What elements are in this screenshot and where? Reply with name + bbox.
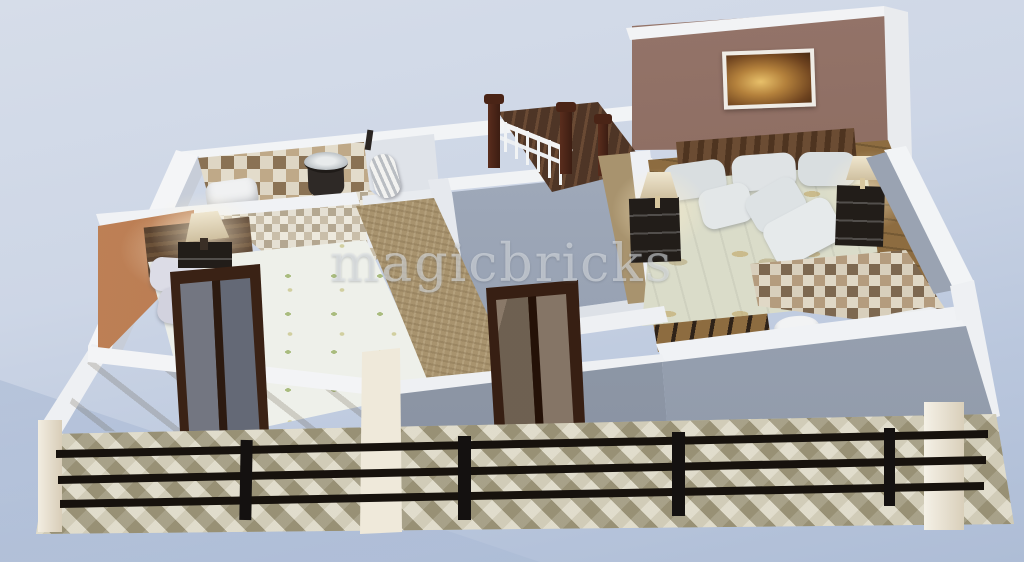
washbasin-bowl	[304, 152, 348, 173]
stair-newel-post	[560, 108, 572, 174]
nightstand-right	[835, 185, 885, 247]
balcony-pillar-right	[924, 402, 964, 530]
railing-post	[672, 432, 685, 516]
lamp-stem	[860, 178, 865, 189]
lamp-stem	[655, 196, 660, 208]
stair-baluster	[526, 131, 529, 165]
newel-post-cap	[556, 102, 576, 112]
stair-newel-post	[488, 100, 500, 168]
wall-painting	[722, 48, 816, 109]
stair-baluster	[548, 140, 551, 178]
railing-post	[458, 436, 471, 520]
newel-post-cap	[594, 114, 612, 124]
watermark: magicbricks	[330, 234, 710, 294]
stair-baluster	[515, 127, 518, 159]
floorplan-3d-render: magicbricks	[0, 0, 1024, 562]
railing-post	[239, 440, 252, 520]
newel-post-cap	[484, 94, 504, 104]
stair-baluster	[504, 122, 507, 152]
stair-baluster	[537, 136, 540, 172]
lamp-stem	[200, 238, 208, 250]
railing-post	[884, 428, 895, 506]
